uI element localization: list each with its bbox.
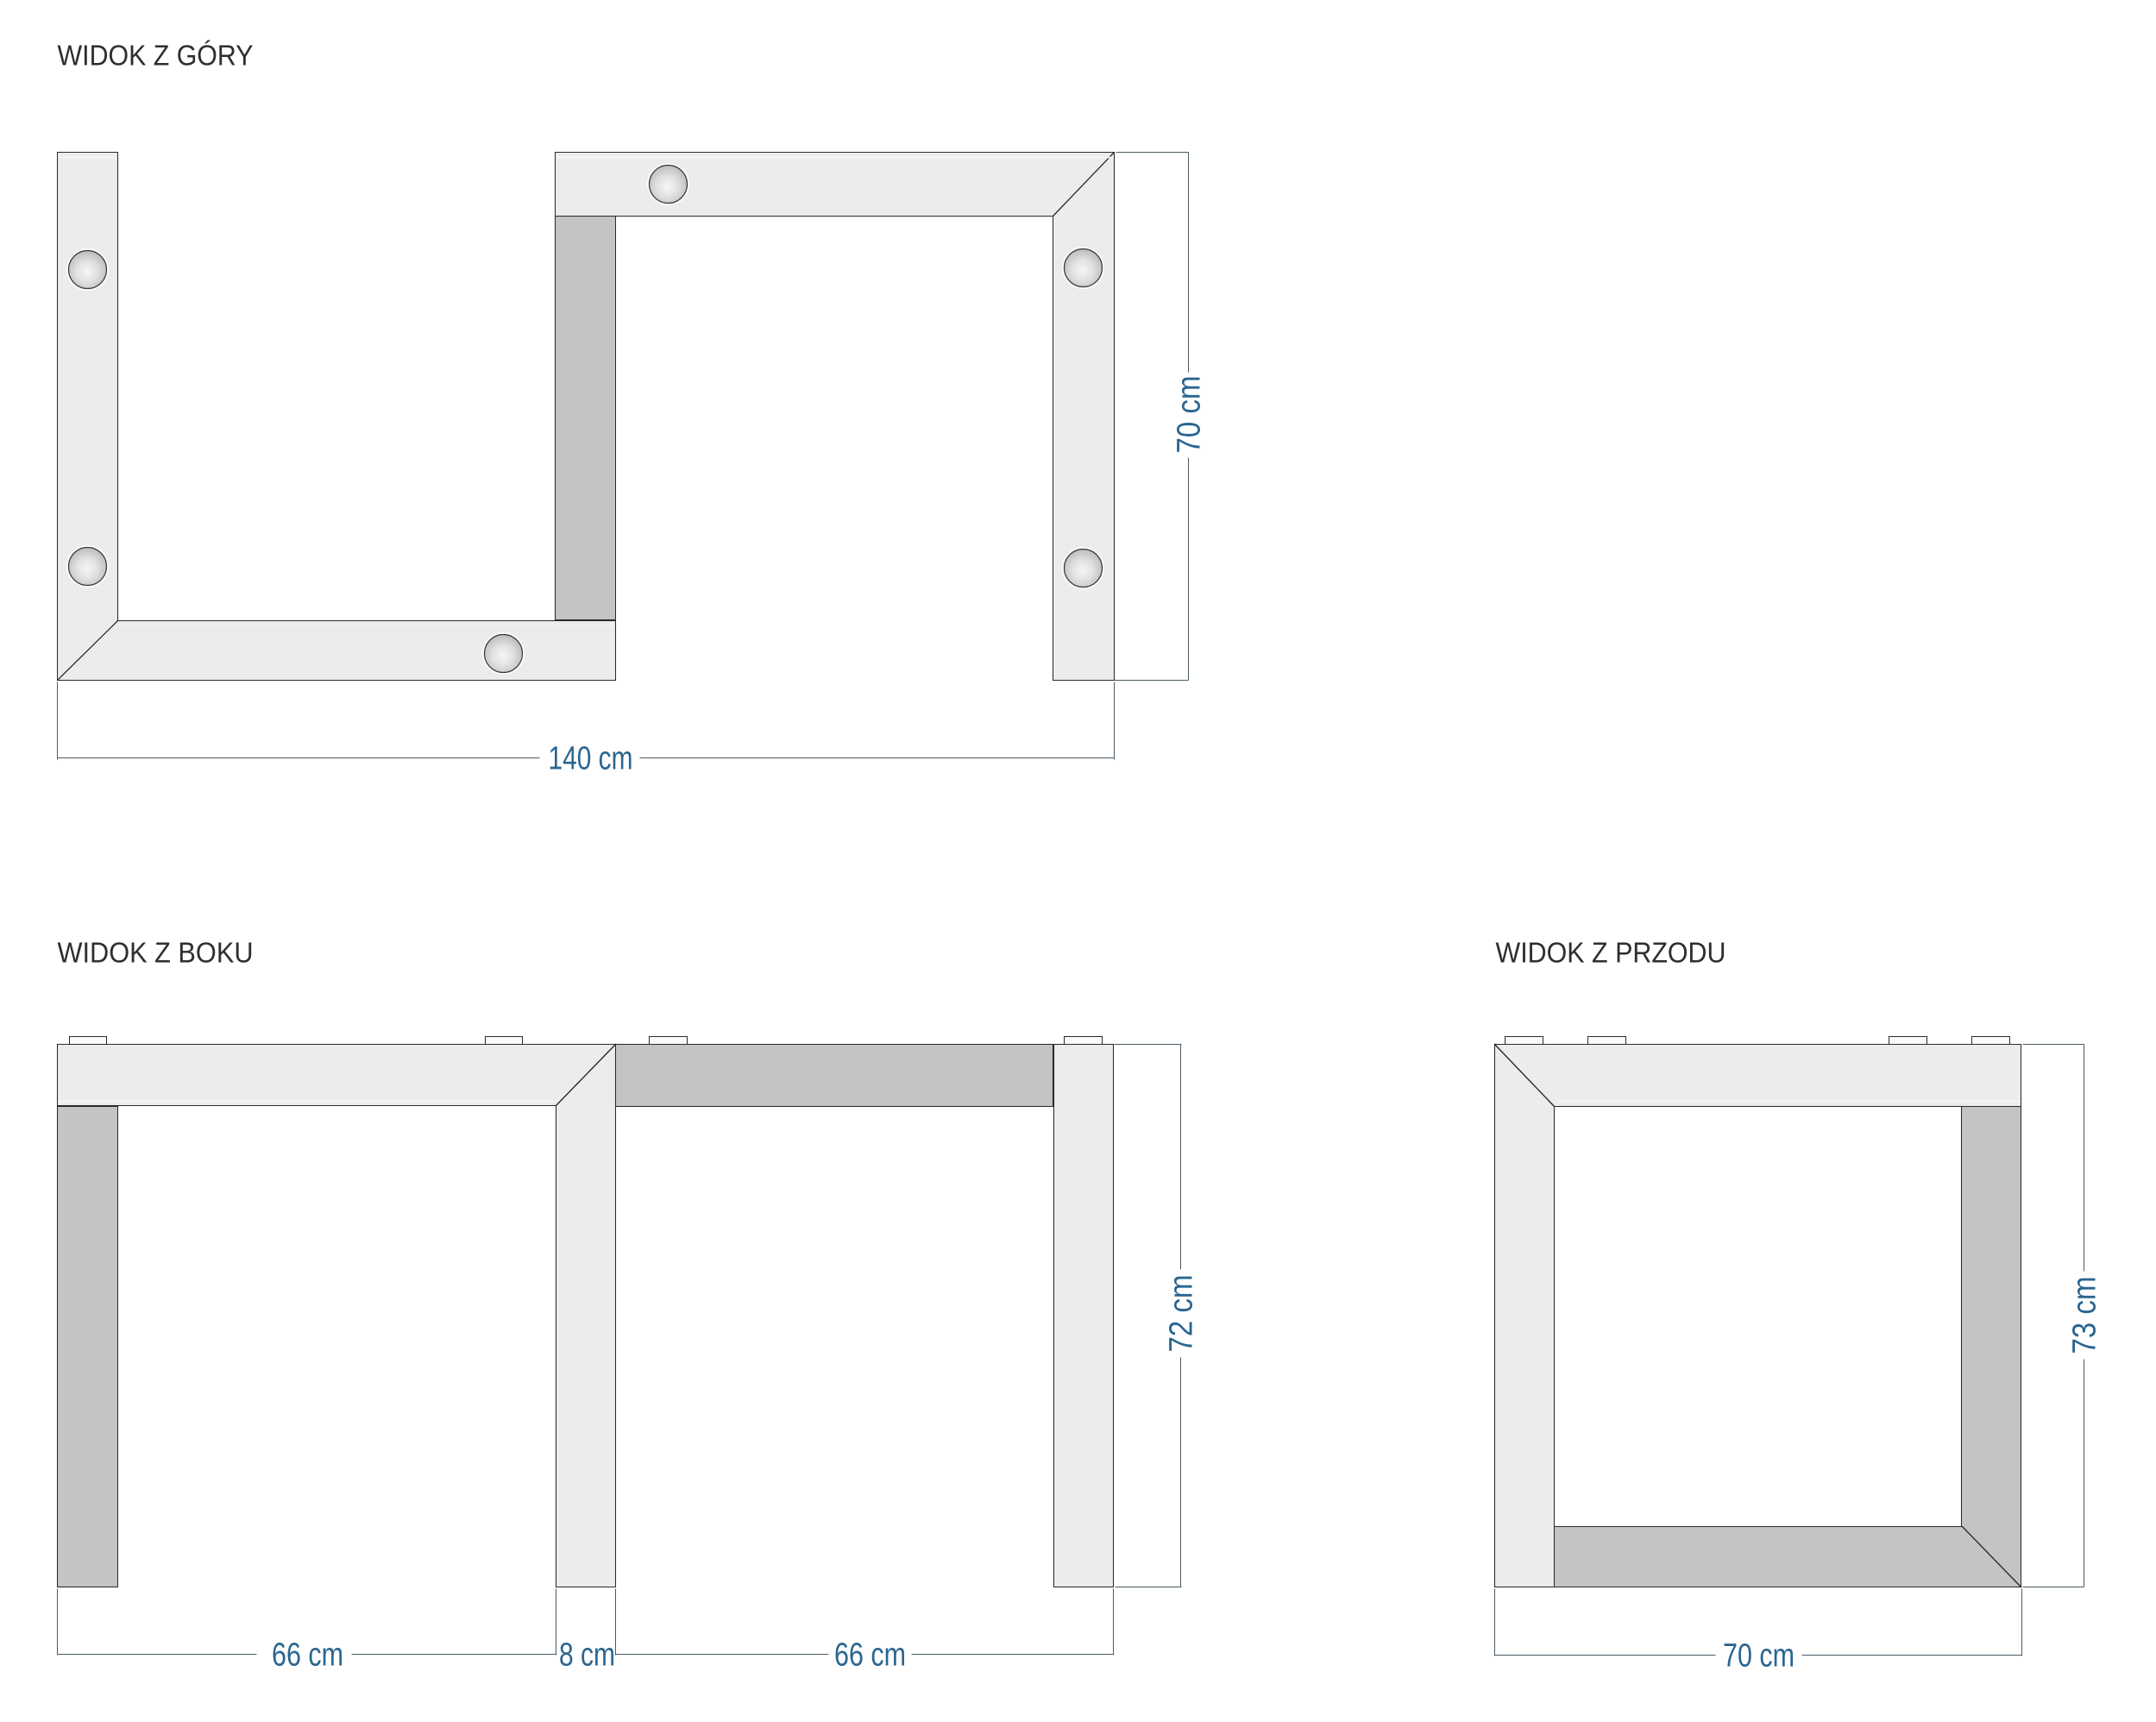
svg-text:72 cm: 72 cm bbox=[1164, 1275, 1200, 1353]
svg-text:WIDOK Z GÓRY: WIDOK Z GÓRY bbox=[58, 40, 254, 72]
svg-text:70 cm: 70 cm bbox=[1172, 376, 1208, 454]
svg-text:140 cm: 140 cm bbox=[549, 741, 633, 777]
svg-text:WIDOK Z PRZODU: WIDOK Z PRZODU bbox=[1496, 937, 1726, 969]
svg-text:66 cm: 66 cm bbox=[272, 1637, 343, 1674]
svg-text:8 cm: 8 cm bbox=[559, 1637, 615, 1674]
svg-text:66 cm: 66 cm bbox=[834, 1637, 906, 1674]
svg-text:70 cm: 70 cm bbox=[1723, 1638, 1795, 1675]
svg-text:73 cm: 73 cm bbox=[2067, 1277, 2103, 1354]
svg-text:WIDOK Z BOKU: WIDOK Z BOKU bbox=[58, 937, 254, 969]
